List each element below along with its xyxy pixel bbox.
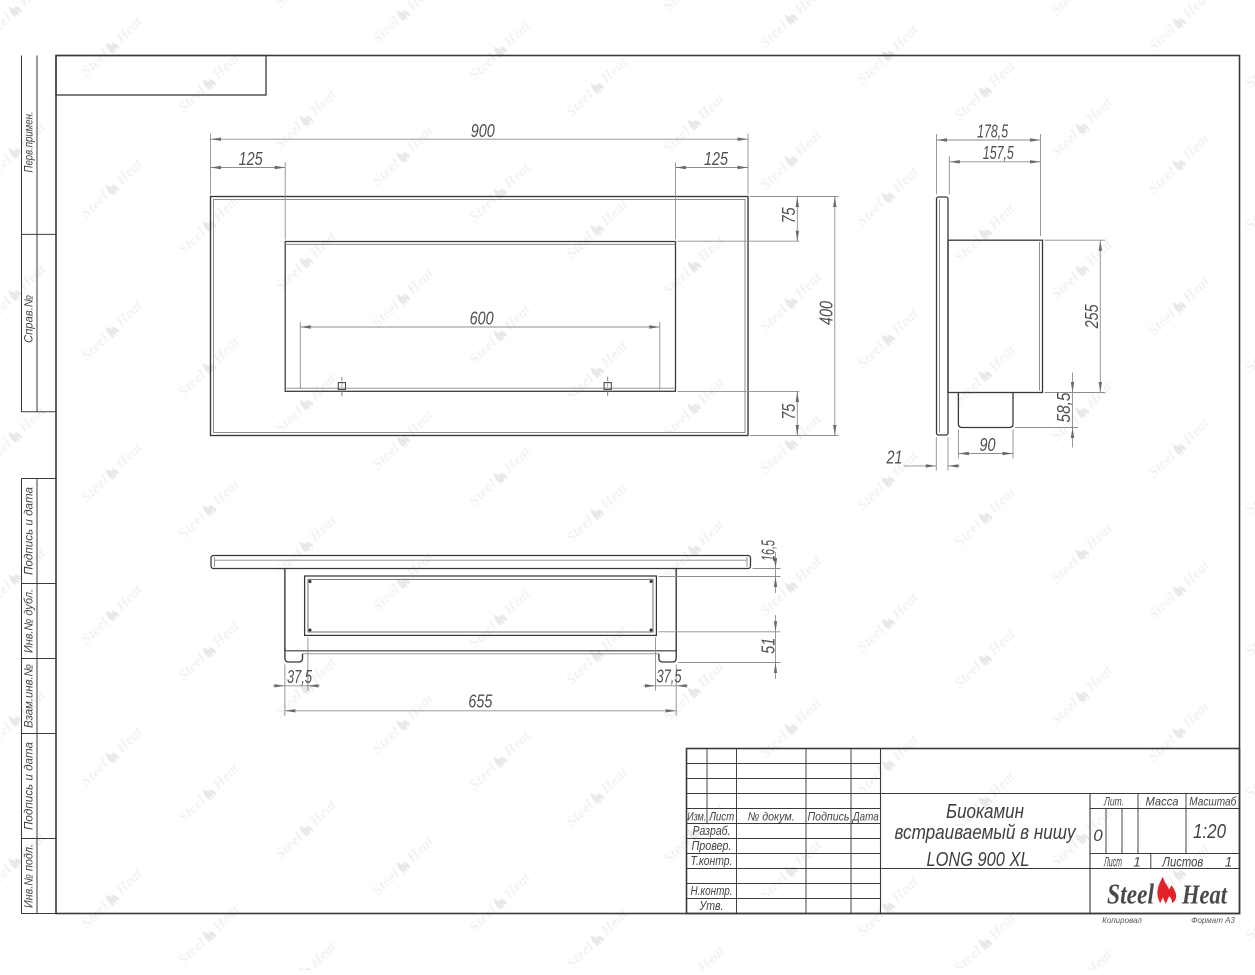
svg-text:255: 255 [1082,304,1102,330]
svg-text:51: 51 [759,638,779,654]
svg-text:655: 655 [468,692,493,712]
svg-text:Формат A3: Формат A3 [1191,916,1235,925]
svg-text:21: 21 [886,448,903,468]
svg-text:125: 125 [239,149,264,169]
svg-text:Инв.№ подл.: Инв.№ подл. [22,844,36,908]
svg-text:Т.контр.: Т.контр. [691,854,733,868]
svg-text:Масса: Масса [1146,794,1179,808]
svg-text:16,5: 16,5 [759,539,779,561]
svg-text:Масштаб: Масштаб [1189,794,1237,808]
svg-text:0: 0 [1093,826,1103,845]
svg-text:1: 1 [1225,854,1233,869]
svg-text:125: 125 [704,149,729,169]
svg-text:Изм.: Изм. [687,809,706,823]
svg-text:58,5: 58,5 [1054,392,1074,423]
svg-text:Взам.инв.№: Взам.инв.№ [22,664,36,728]
svg-text:90: 90 [980,435,996,455]
svg-text:Листов: Листов [1161,854,1203,869]
svg-text:Лист: Лист [708,809,734,823]
svg-text:Подпись: Подпись [808,809,850,823]
svg-text:75: 75 [779,207,799,224]
svg-text:Подпись и дата: Подпись и дата [22,742,36,830]
svg-text:Перв.примен.: Перв.примен. [22,112,36,173]
svg-text:Разраб.: Разраб. [693,824,731,838]
svg-text:Утв.: Утв. [699,899,724,913]
svg-text:37,5: 37,5 [657,667,683,687]
svg-text:400: 400 [817,301,837,325]
svg-text:Н.контр.: Н.контр. [691,884,733,898]
svg-text:Биокамин: Биокамин [946,801,1024,823]
svg-text:157,5: 157,5 [983,143,1015,163]
svg-text:№ докум.: № докум. [748,809,795,823]
svg-text:встраиваемый в нишу: встраиваемый в нишу [895,822,1077,844]
svg-text:Провер.: Провер. [692,839,732,853]
svg-text:LONG 900 XL: LONG 900 XL [927,849,1030,871]
svg-text:900: 900 [471,121,495,141]
svg-text:Копировал: Копировал [1102,916,1142,925]
svg-text:Справ.№: Справ.№ [22,295,36,343]
svg-text:Heat: Heat [1181,880,1228,910]
svg-text:Лит.: Лит. [1103,794,1124,808]
svg-text:1:20: 1:20 [1193,821,1226,843]
svg-text:1: 1 [1133,854,1141,869]
svg-text:37,5: 37,5 [287,667,313,687]
svg-text:75: 75 [779,403,799,420]
svg-text:Дата: Дата [851,809,879,823]
svg-text:Steel: Steel [1107,880,1154,911]
svg-text:Лист: Лист [1103,854,1122,869]
svg-text:600: 600 [470,309,494,329]
svg-text:Инв.№ дубл.: Инв.№ дубл. [22,589,36,653]
svg-text:Подпись и дата: Подпись и дата [22,487,36,575]
svg-text:178,5: 178,5 [977,121,1009,141]
